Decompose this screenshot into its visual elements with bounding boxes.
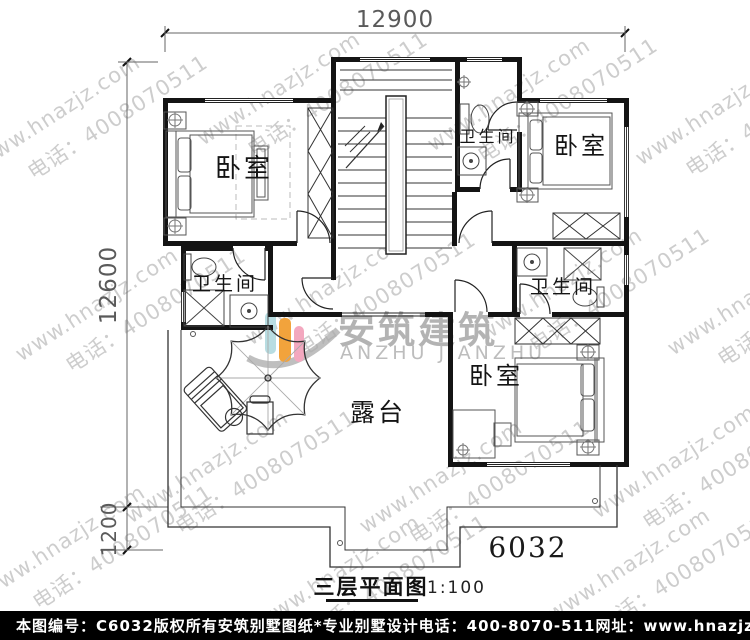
caption-underline [326, 599, 418, 602]
footer-website: 网址：www.hnazjz.com [595, 615, 750, 636]
footer-brand: 安筑别墅图纸*专业别墅设计 [218, 615, 419, 636]
floor-plan-drawing: 12900 12600 1200 [0, 0, 750, 611]
room-label-bedroom-upper-left: 卧室 [215, 154, 273, 184]
dim-left-height: 12600 [96, 246, 122, 324]
staircase [338, 70, 452, 254]
blueprint-sheet: www.hnazjz.com电话：4008070511 www.hnazjz.c… [0, 0, 750, 640]
footer-copyright: 版权所有 [154, 615, 218, 636]
dim-top-width: 12900 [356, 7, 434, 33]
room-label-bedroom-upper-right: 卧室 [554, 132, 608, 160]
patio-umbrella [216, 326, 320, 430]
footer-phone: 电话：400-8070-511 [419, 615, 596, 636]
room-label-bath-left: 卫生间 [192, 273, 258, 295]
room-label-bath-top: 卫生间 [459, 127, 516, 146]
footer-sheet-id: 本图编号：C6032 [16, 615, 154, 636]
caption-scale: 1:100 [427, 578, 486, 598]
plan-number: 6032 [488, 531, 567, 564]
room-label-terrace: 露台 [350, 398, 406, 427]
caption-title: 三层平面图 [314, 575, 429, 599]
lounge-chair [183, 366, 249, 433]
footer-bar: 本图编号：C6032 版权所有 安筑别墅图纸*专业别墅设计 电话：400-807… [0, 611, 750, 640]
room-label-bedroom-lower-right: 卧室 [469, 362, 523, 390]
dim-left-lower: 1200 [97, 502, 121, 557]
room-label-bath-right: 卫生间 [530, 276, 596, 298]
